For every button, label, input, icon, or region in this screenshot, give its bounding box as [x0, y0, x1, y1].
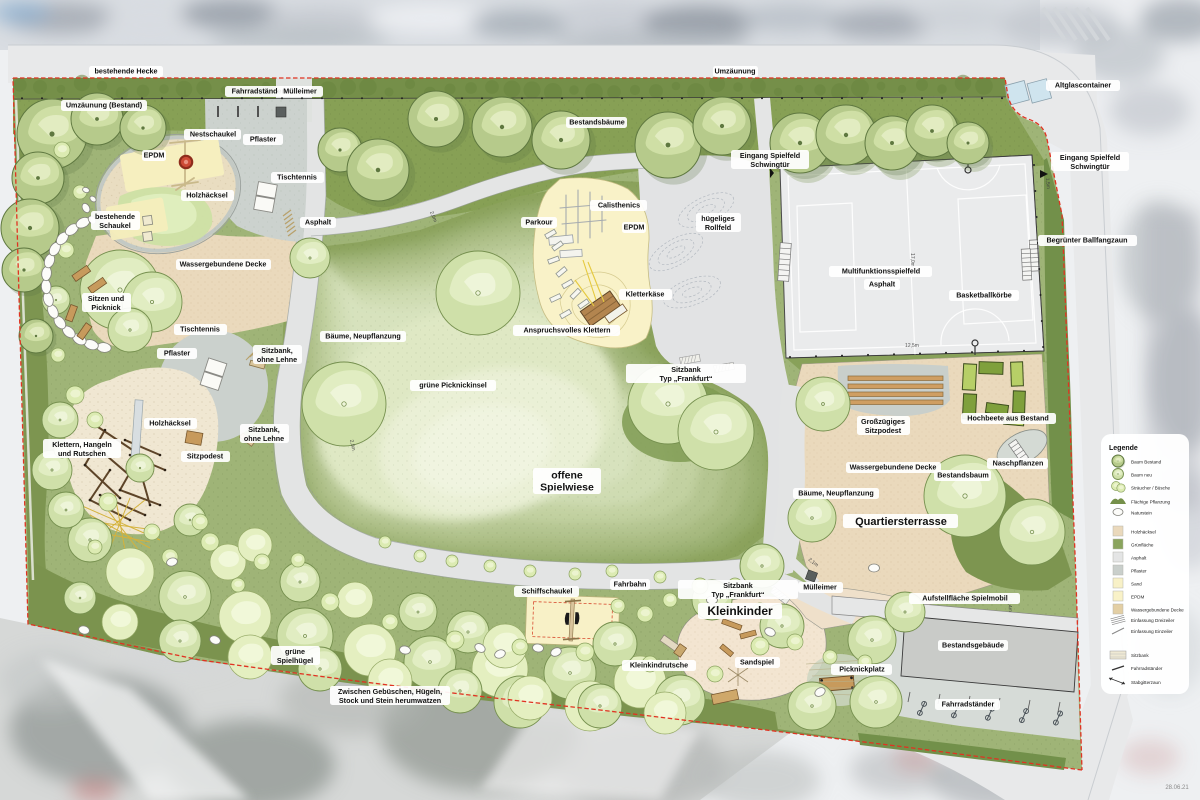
- svg-text:Asphalt: Asphalt: [305, 218, 332, 227]
- svg-text:Zwischen Gebüschen, Hügeln,: Zwischen Gebüschen, Hügeln,: [338, 687, 442, 696]
- svg-text:Kletterkäse: Kletterkäse: [626, 290, 665, 299]
- svg-text:Altglascontainer: Altglascontainer: [1055, 81, 1112, 90]
- svg-text:Schwingtür: Schwingtür: [1070, 162, 1109, 171]
- svg-text:Bestandsbäume: Bestandsbäume: [569, 118, 625, 127]
- svg-text:Flächige Pflanzung: Flächige Pflanzung: [1131, 500, 1171, 505]
- svg-text:Begrünter Ballfangzaun: Begrünter Ballfangzaun: [1046, 236, 1127, 245]
- svg-text:grüne: grüne: [285, 647, 305, 656]
- svg-text:Sitzbank: Sitzbank: [671, 365, 701, 374]
- svg-text:Fahrradständer: Fahrradständer: [1131, 666, 1163, 671]
- svg-text:Parkour: Parkour: [525, 218, 552, 227]
- svg-text:Wassergebundene Decke: Wassergebundene Decke: [1131, 608, 1184, 613]
- svg-text:Bestandsbaum: Bestandsbaum: [937, 471, 989, 480]
- svg-text:grüne Picknickinsel: grüne Picknickinsel: [419, 381, 487, 390]
- svg-text:Picknickplatz: Picknickplatz: [839, 665, 885, 674]
- svg-text:17,0m: 17,0m: [909, 253, 915, 267]
- svg-text:Sitzpodest: Sitzpodest: [187, 452, 224, 461]
- svg-text:offene: offene: [551, 470, 583, 482]
- svg-text:Asphalt: Asphalt: [1131, 556, 1147, 561]
- svg-text:Anspruchsvolles Klettern: Anspruchsvolles Klettern: [523, 326, 610, 335]
- svg-text:28.06.21: 28.06.21: [1165, 785, 1189, 791]
- svg-text:Sand: Sand: [1131, 582, 1142, 587]
- svg-text:Baum Bestand: Baum Bestand: [1131, 460, 1162, 465]
- svg-text:Stock und Stein herumwatzen: Stock und Stein herumwatzen: [339, 696, 441, 705]
- svg-text:Wassergebundene Decke: Wassergebundene Decke: [850, 463, 937, 472]
- svg-text:1,5m: 1,5m: [1044, 178, 1051, 190]
- svg-text:Holzhäcksel: Holzhäcksel: [1131, 530, 1156, 535]
- svg-text:Pflaster: Pflaster: [1131, 569, 1147, 574]
- svg-text:Umzäunung (Bestand): Umzäunung (Bestand): [66, 101, 143, 110]
- svg-text:Quartiersterrasse: Quartiersterrasse: [855, 516, 947, 528]
- svg-text:Rollfeld: Rollfeld: [705, 223, 731, 232]
- svg-text:Schiffschaukel: Schiffschaukel: [522, 587, 573, 596]
- svg-text:Holzhäcksel: Holzhäcksel: [186, 191, 228, 200]
- svg-text:Bäume, Neupflanzung: Bäume, Neupflanzung: [798, 489, 873, 498]
- svg-text:Holzhäcksel: Holzhäcksel: [149, 419, 191, 428]
- svg-text:Wassergebundene Decke: Wassergebundene Decke: [180, 260, 267, 269]
- svg-text:Fahrbahn: Fahrbahn: [614, 580, 647, 589]
- svg-text:bestehende: bestehende: [95, 212, 135, 221]
- svg-text:Grünfläche: Grünfläche: [1131, 543, 1154, 548]
- svg-text:Tischtennis: Tischtennis: [277, 173, 317, 182]
- svg-text:Bestandsgebäude: Bestandsgebäude: [942, 641, 1004, 650]
- svg-text:Pflaster: Pflaster: [164, 349, 191, 358]
- svg-text:Spielhügel: Spielhügel: [277, 656, 313, 665]
- svg-text:EPDM: EPDM: [624, 223, 645, 232]
- svg-text:Kleinkindrutsche: Kleinkindrutsche: [630, 661, 688, 670]
- svg-text:Sitzbank: Sitzbank: [1131, 653, 1149, 658]
- svg-text:Baum neu: Baum neu: [1131, 473, 1152, 478]
- svg-text:Schaukel: Schaukel: [99, 221, 131, 230]
- svg-text:Hochbeete aus Bestand: Hochbeete aus Bestand: [967, 414, 1048, 423]
- svg-text:Umzäunung: Umzäunung: [714, 67, 755, 76]
- svg-text:Einfassung Dreizeiler: Einfassung Dreizeiler: [1131, 618, 1175, 623]
- svg-text:Sitzbank: Sitzbank: [723, 581, 753, 590]
- svg-text:bestehende Hecke: bestehende Hecke: [94, 67, 157, 76]
- svg-text:Naturstein: Naturstein: [1131, 511, 1152, 516]
- svg-text:hügeliges: hügeliges: [701, 214, 735, 223]
- svg-text:ohne Lehne: ohne Lehne: [244, 434, 284, 443]
- svg-text:Typ „Frankfurt“: Typ „Frankfurt“: [660, 374, 713, 383]
- svg-text:Fahrradständer: Fahrradständer: [942, 700, 995, 709]
- svg-text:Klettern, Hangeln: Klettern, Hangeln: [52, 440, 112, 449]
- svg-text:Eingang Spielfeld: Eingang Spielfeld: [1060, 153, 1120, 162]
- svg-text:Naschpflanzen: Naschpflanzen: [993, 459, 1044, 468]
- svg-text:Einfassung Einzeiler: Einfassung Einzeiler: [1131, 629, 1173, 634]
- svg-text:Sandspiel: Sandspiel: [740, 658, 774, 667]
- svg-text:Kleinkinder: Kleinkinder: [707, 604, 773, 618]
- svg-text:Aufstellfläche Spielmobil: Aufstellfläche Spielmobil: [922, 594, 1007, 603]
- svg-text:Multifunktionsspielfeld: Multifunktionsspielfeld: [842, 267, 920, 276]
- svg-text:Picknick: Picknick: [91, 303, 120, 312]
- svg-text:Mülleimer: Mülleimer: [803, 583, 837, 592]
- svg-text:Sitzpodest: Sitzpodest: [865, 426, 902, 435]
- svg-text:Sitzbank,: Sitzbank,: [261, 346, 293, 355]
- svg-text:und Rutschen: und Rutschen: [58, 449, 106, 458]
- svg-text:Legende: Legende: [1109, 445, 1138, 452]
- svg-text:Sitzbank,: Sitzbank,: [248, 425, 280, 434]
- svg-text:Bäume, Neupflanzung: Bäume, Neupflanzung: [325, 332, 400, 341]
- svg-text:Fahrradständer: Fahrradständer: [232, 87, 285, 96]
- svg-text:Sitzen und: Sitzen und: [88, 294, 124, 303]
- svg-text:Eingang Spielfeld: Eingang Spielfeld: [740, 151, 800, 160]
- svg-text:Großzügiges: Großzügiges: [861, 417, 905, 426]
- svg-text:12,5m: 12,5m: [905, 343, 919, 349]
- svg-text:EPDM: EPDM: [144, 151, 165, 160]
- svg-text:Calisthenics: Calisthenics: [598, 201, 640, 210]
- svg-text:Mülleimer: Mülleimer: [283, 87, 317, 96]
- svg-text:Asphalt: Asphalt: [869, 280, 896, 289]
- svg-text:Sträucher / Büsche: Sträucher / Büsche: [1131, 486, 1171, 491]
- svg-text:EPDM: EPDM: [1131, 595, 1144, 600]
- svg-text:Typ „Frankfurt“: Typ „Frankfurt“: [712, 590, 765, 599]
- svg-text:Schwingtür: Schwingtür: [750, 160, 789, 169]
- svg-text:Tischtennis: Tischtennis: [180, 325, 220, 334]
- svg-text:Pflaster: Pflaster: [250, 135, 277, 144]
- svg-text:ohne Lehne: ohne Lehne: [257, 355, 297, 364]
- svg-text:Spielwiese: Spielwiese: [540, 482, 594, 494]
- svg-text:Stabgitterzaun: Stabgitterzaun: [1131, 680, 1161, 685]
- svg-text:Basketballkörbe: Basketballkörbe: [956, 291, 1012, 300]
- svg-text:Nestschaukel: Nestschaukel: [190, 130, 236, 139]
